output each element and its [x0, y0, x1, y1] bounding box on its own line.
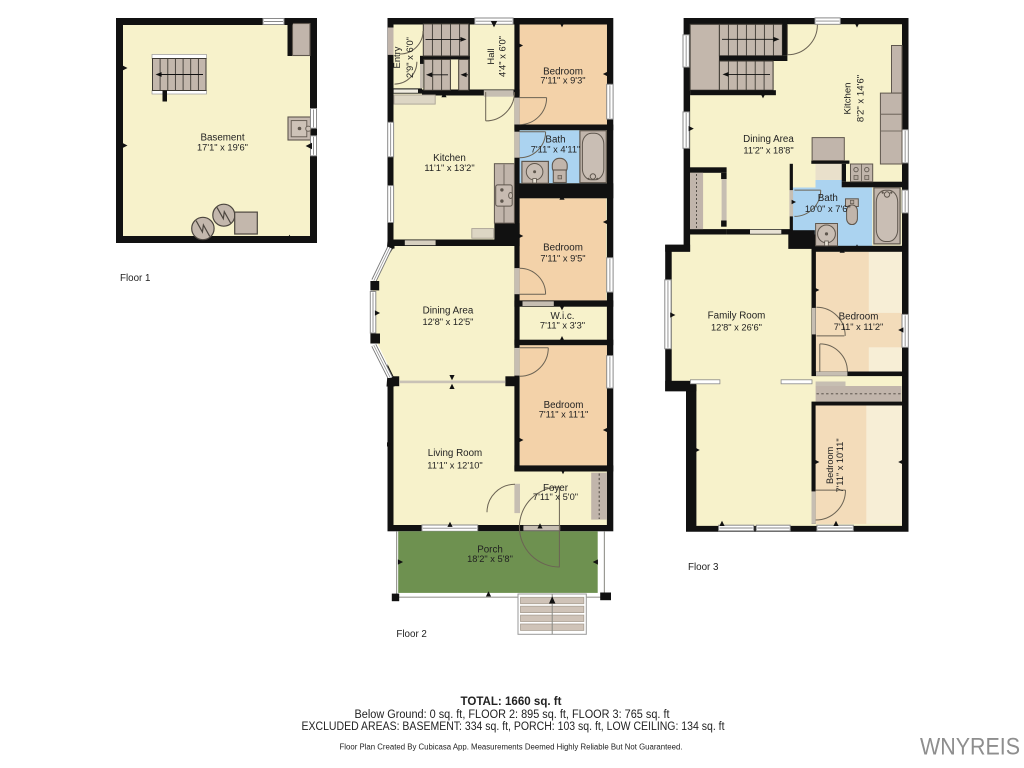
svg-text:Dining Area: Dining Area — [423, 305, 474, 316]
svg-text:12'8" x 12'5": 12'8" x 12'5" — [423, 317, 474, 327]
svg-text:4'4" x 6'0": 4'4" x 6'0" — [497, 36, 508, 77]
svg-text:Bedroom: Bedroom — [825, 446, 835, 484]
svg-text:12'8" x 26'6": 12'8" x 26'6" — [711, 322, 762, 332]
svg-text:8'2" x 14'6": 8'2" x 14'6" — [856, 75, 867, 122]
svg-text:Bedroom: Bedroom — [543, 242, 583, 253]
svg-text:7'11" x 9'5": 7'11" x 9'5" — [540, 254, 585, 264]
svg-text:11'2" x 18'8": 11'2" x 18'8" — [743, 145, 793, 155]
svg-text:Bath: Bath — [818, 193, 838, 204]
svg-text:11'1" x 13'2": 11'1" x 13'2" — [424, 163, 474, 173]
svg-text:17'1" x 19'6": 17'1" x 19'6" — [197, 142, 248, 152]
svg-text:Floor 3: Floor 3 — [688, 562, 719, 573]
svg-text:WNYREIS: WNYREIS — [920, 734, 1020, 761]
svg-text:18'2" x 5'8": 18'2" x 5'8" — [467, 554, 513, 564]
svg-text:2'9" x 6'0": 2'9" x 6'0" — [404, 37, 415, 78]
svg-text:Floor Plan Created By Cubicasa: Floor Plan Created By Cubicasa App. Meas… — [340, 743, 683, 752]
svg-text:Floor 1: Floor 1 — [120, 273, 151, 284]
svg-text:11'1" x 12'10": 11'1" x 12'10" — [427, 460, 482, 470]
svg-text:Bedroom: Bedroom — [839, 311, 879, 322]
svg-text:Floor 2: Floor 2 — [396, 629, 427, 640]
svg-text:7'11" x 5'0": 7'11" x 5'0" — [533, 492, 578, 502]
svg-text:Dining Area: Dining Area — [743, 134, 794, 145]
svg-text:TOTAL: 1660 sq. ft: TOTAL: 1660 sq. ft — [461, 694, 562, 708]
svg-text:7'11" x 11'1": 7'11" x 11'1" — [539, 410, 589, 420]
svg-text:7'11" x 3'3": 7'11" x 3'3" — [540, 320, 585, 330]
svg-text:Below Ground: 0 sq. ft, FLOOR: Below Ground: 0 sq. ft, FLOOR 2: 895 sq.… — [355, 709, 671, 721]
svg-text:7'11" x 11'2": 7'11" x 11'2" — [834, 322, 884, 332]
svg-text:Living Room: Living Room — [428, 448, 482, 459]
svg-text:EXCLUDED AREAS: BASEMENT: 334: EXCLUDED AREAS: BASEMENT: 334 sq. ft, PO… — [302, 721, 726, 733]
svg-text:7'11" x 9'3": 7'11" x 9'3" — [540, 76, 585, 86]
svg-text:Entry: Entry — [391, 46, 402, 68]
svg-text:10'0" x 7'6": 10'0" x 7'6" — [805, 204, 851, 214]
svg-text:Family Room: Family Room — [708, 311, 766, 322]
svg-text:7'11" x 10'11": 7'11" x 10'11" — [835, 438, 845, 492]
svg-text:Hall: Hall — [485, 48, 496, 64]
svg-text:Kitchen: Kitchen — [843, 83, 854, 115]
svg-text:7'11" x 4'11": 7'11" x 4'11" — [531, 145, 581, 155]
